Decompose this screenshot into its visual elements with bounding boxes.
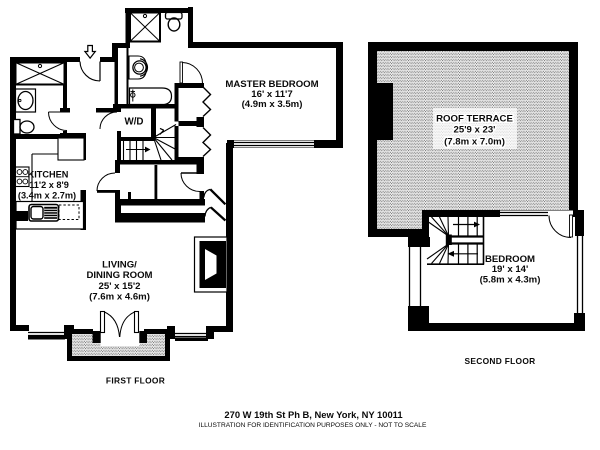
svg-text:ROOF TERRACE: ROOF TERRACE xyxy=(436,113,513,124)
svg-text:DINING ROOM: DINING ROOM xyxy=(86,270,152,281)
svg-text:(3.4m x 2.7m): (3.4m x 2.7m) xyxy=(18,190,76,200)
svg-text:19' x 14': 19' x 14' xyxy=(492,264,529,275)
svg-text:LIVING/: LIVING/ xyxy=(102,259,137,270)
svg-text:11'2 x 8'9: 11'2 x 8'9 xyxy=(29,180,69,190)
svg-text:(4.9m x 3.5m): (4.9m x 3.5m) xyxy=(242,99,303,110)
svg-text:(7.8m x 7.0m): (7.8m x 7.0m) xyxy=(444,136,505,147)
svg-text:W/D: W/D xyxy=(124,117,143,128)
svg-text:25' x 15'2: 25' x 15'2 xyxy=(99,281,141,292)
svg-text:(7.6m x 4.6m): (7.6m x 4.6m) xyxy=(89,291,150,302)
svg-text:270 W 19th St Ph B, New York,: 270 W 19th St Ph B, New York, NY 10011 xyxy=(224,409,402,420)
svg-text:KITCHEN: KITCHEN xyxy=(28,169,69,179)
svg-text:ILLUSTRATION FOR IDENTIFICATIO: ILLUSTRATION FOR IDENTIFICATION PURPOSES… xyxy=(199,422,427,429)
svg-text:SECOND FLOOR: SECOND FLOOR xyxy=(464,356,535,366)
svg-text:(5.8m x 4.3m): (5.8m x 4.3m) xyxy=(480,275,541,286)
svg-text:FIRST FLOOR: FIRST FLOOR xyxy=(106,375,165,385)
svg-text:25'9 x 23': 25'9 x 23' xyxy=(454,124,496,135)
